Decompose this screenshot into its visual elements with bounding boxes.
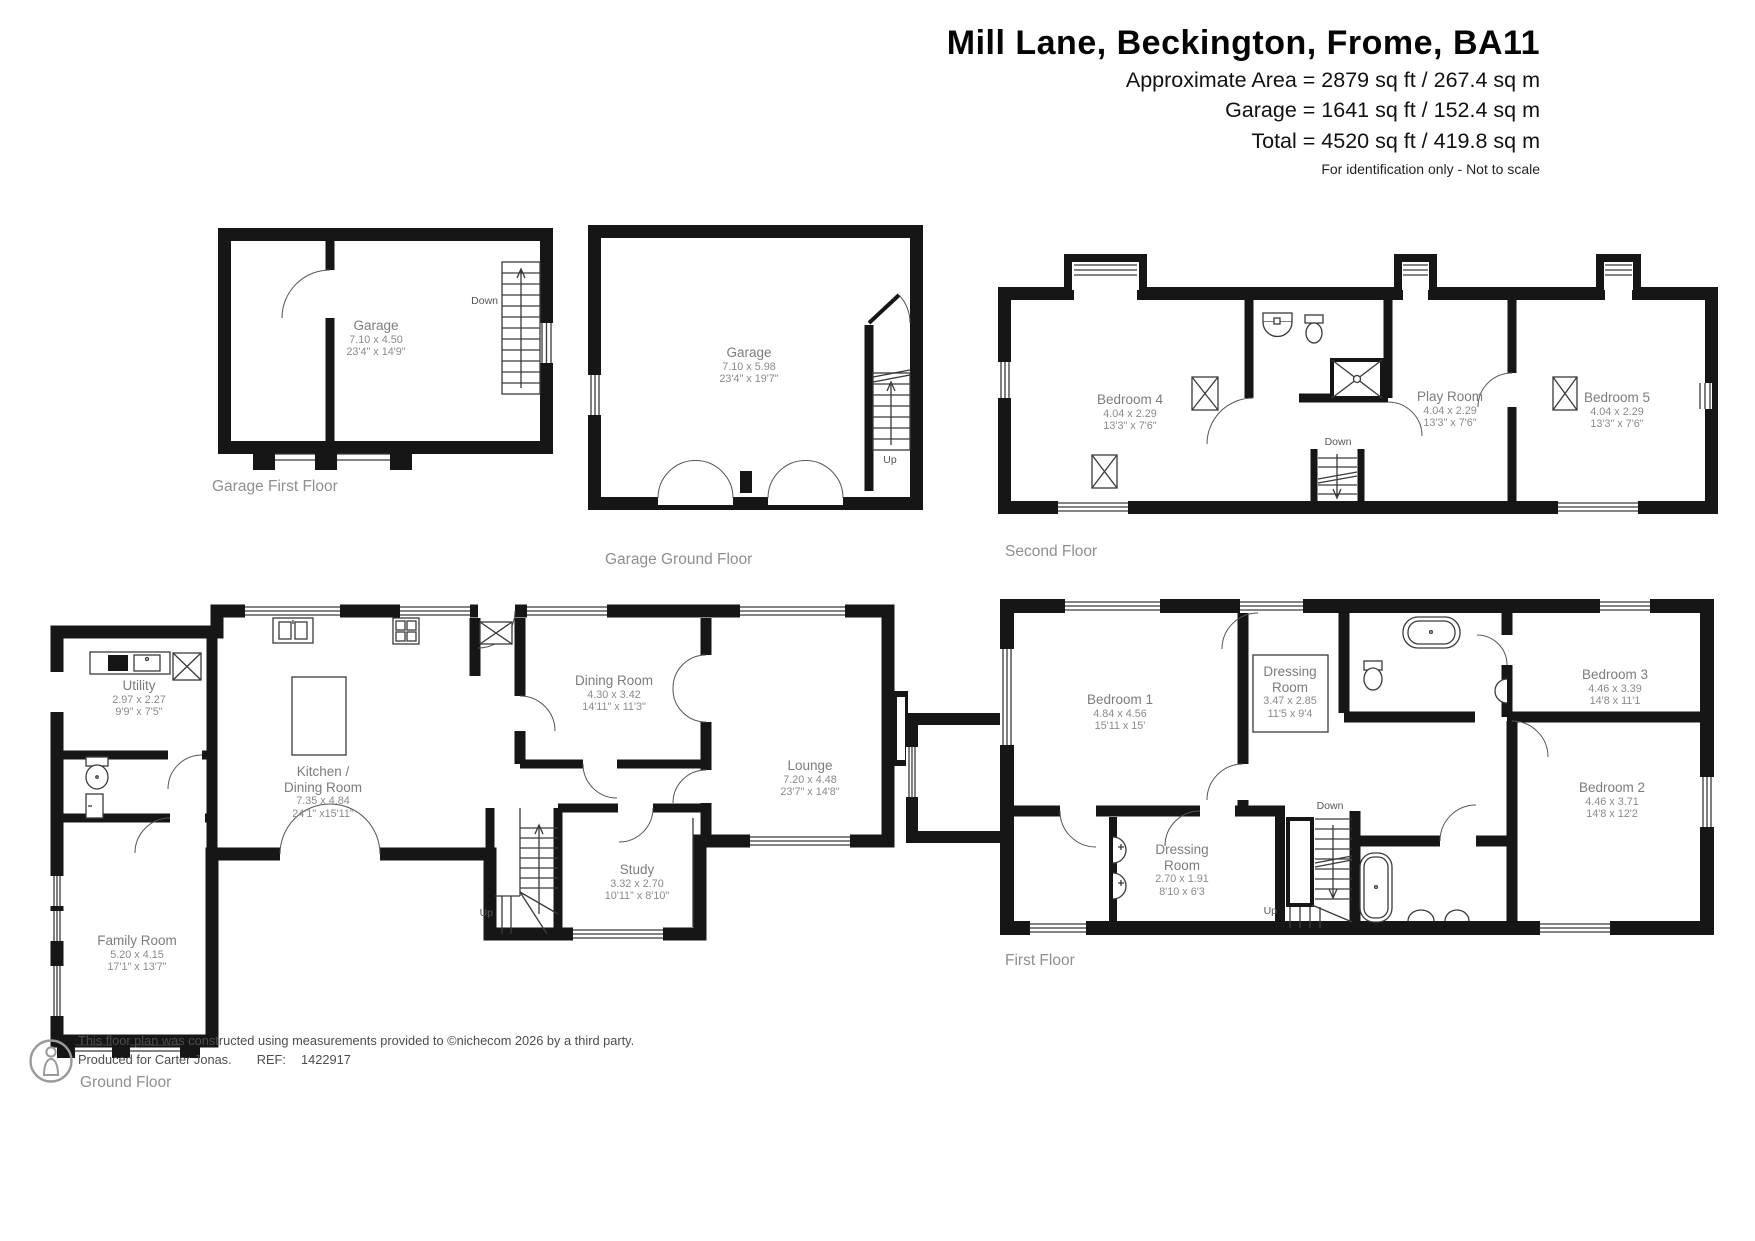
caption-first-floor: First Floor [1005,952,1075,970]
approximate-area: Approximate Area = 2879 sq ft / 267.4 sq… [947,68,1540,93]
caption-ground-floor: Ground Floor [80,1074,171,1092]
title-block: Mill Lane, Beckington, Frome, BA11 Appro… [947,24,1540,177]
garage-first-floor-plan: Down Garage 7.10 x 4.50 23'4" x 14'9" [218,228,553,476]
room-label-utility: Utility 2.97 x 2.27 9'9" x 7'5" [79,678,199,719]
room-label-dressing-bottom: Dressing Room 2.70 x 1.91 8'10 x 6'3 [1127,842,1237,898]
page-title: Mill Lane, Beckington, Frome, BA11 [947,24,1540,63]
room-label-garage: Garage 7.10 x 4.50 23'4" x 14'9" [296,318,456,359]
window [540,323,553,363]
room-label-bedroom5: Bedroom 5 4.04 x 2.29 13'3" x 7'6" [1557,390,1677,431]
stairs-down-label: Down [471,295,498,307]
room-label-dining: Dining Room 4.30 x 3.42 14'11" x 11'3" [534,673,694,714]
room-label-bedroom1: Bedroom 1 4.84 x 4.56 15'11 x 15' [1040,692,1200,733]
second-floor-plan: Down Bedroom 4 4.04 x 2.29 13'3" x 7'6" … [998,252,1718,520]
room-label-bedroom2: Bedroom 2 4.46 x 3.71 14'8 x 12'2 [1542,780,1682,821]
room-label-garage: Garage 7.10 x 5.98 23'4" x 19'7" [669,345,829,386]
footer-text: This floor plan was constructed using me… [78,1032,634,1069]
identification-note: For identification only - Not to scale [947,161,1540,177]
room-label-study: Study 3.32 x 2.70 10'11" x 8'10" [567,862,707,903]
room-label-kitchen-dining: Kitchen / Dining Room 7.35 x 4.84 24'1" … [243,764,403,820]
room-label-playroom: Play Room 4.04 x 2.29 13'3" x 7'6" [1390,389,1510,430]
caption-second-floor: Second Floor [1005,543,1097,561]
caption-garage-ground-floor: Garage Ground Floor [605,551,752,569]
ref-label: REF: [257,1052,286,1067]
room-label-lounge: Lounge 7.20 x 4.48 23'7" x 14'8" [740,758,880,799]
shower [1332,360,1382,398]
garage-ground-floor-plan: Up Garage 7.10 x 5.98 23'4" x 19'7" [588,225,923,510]
room-label-bedroom4: Bedroom 4 4.04 x 2.29 13'3" x 7'6" [1070,392,1190,433]
stairs-up-label: Up [1264,905,1278,917]
window [588,375,601,415]
ground-floor-plan: Up Utility 2.97 x 2.27 9'9" x 7'5" Kitch… [50,596,910,1066]
caption-garage-first-floor: Garage First Floor [212,478,338,496]
room-label-family: Family Room 5.20 x 4.15 17'1" x 13'7" [67,933,207,974]
stairs-up-label: Up [883,454,897,466]
footer: This floor plan was constructed using me… [28,1026,74,1099]
ref-value: 1422917 [301,1052,351,1067]
total-area: Total = 4520 sq ft / 419.8 sq m [947,129,1540,154]
room-label-bedroom3: Bedroom 3 4.46 x 3.39 14'8 x 11'1 [1545,667,1685,708]
person-icon [28,1026,74,1096]
room-label-dressing-top: Dressing Room 3.47 x 2.85 11'5 x 9'4 [1230,664,1350,720]
stairs-up-label: Up [480,907,494,919]
footer-line1: This floor plan was constructed using me… [78,1032,634,1051]
floorplan-page: Mill Lane, Beckington, Frome, BA11 Appro… [0,0,1755,1241]
garage-area: Garage = 1641 sq ft / 152.4 sq m [947,98,1540,123]
stairs-down-label: Down [1317,800,1344,812]
first-floor-plan: Down Up Bedroom 1 4.84 x 4.56 15'11 x 15… [900,597,1717,942]
produced-for: Produced for Carter Jonas. [78,1052,232,1067]
stairs-down-label: Down [1325,436,1352,448]
footer-line2: Produced for Carter Jonas. REF: 1422917 [78,1051,634,1070]
